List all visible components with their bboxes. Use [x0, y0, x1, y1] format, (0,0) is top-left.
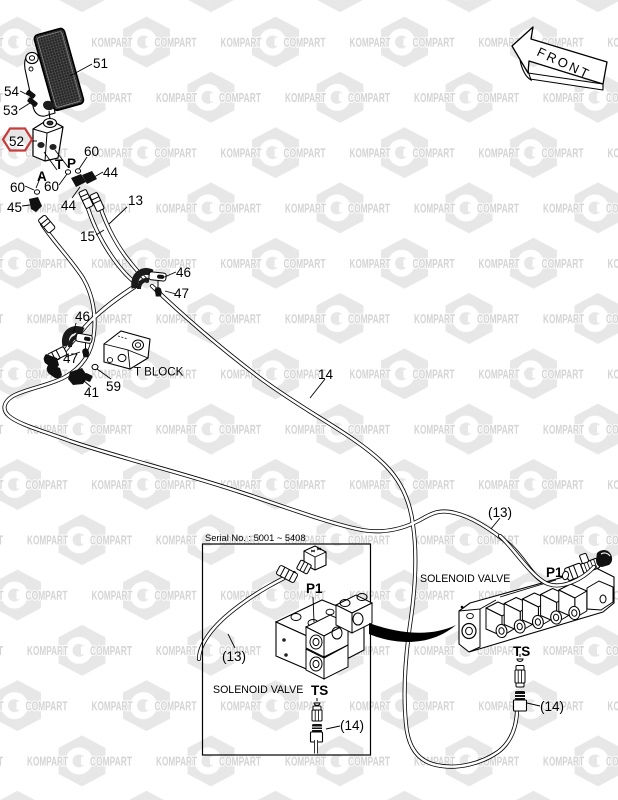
svg-text:44: 44 — [103, 165, 119, 180]
svg-text:P1: P1 — [546, 565, 563, 580]
svg-text:TS: TS — [513, 644, 530, 659]
svg-text:46: 46 — [75, 309, 90, 324]
svg-text:47: 47 — [63, 351, 78, 366]
svg-text:46: 46 — [176, 265, 191, 280]
svg-text:60: 60 — [84, 144, 99, 159]
svg-text:TS: TS — [311, 683, 328, 698]
svg-text:13: 13 — [128, 193, 143, 208]
svg-text:52: 52 — [9, 134, 24, 149]
svg-text:47: 47 — [174, 286, 189, 301]
svg-text:(13): (13) — [488, 505, 512, 520]
svg-text:14: 14 — [318, 367, 334, 382]
svg-text:60: 60 — [10, 180, 25, 195]
svg-text:SOLENOID VALVE: SOLENOID VALVE — [213, 684, 303, 696]
svg-text:15: 15 — [80, 229, 95, 244]
svg-text:59: 59 — [106, 379, 121, 394]
svg-text:T: T — [55, 157, 64, 172]
svg-text:(14): (14) — [540, 699, 564, 714]
svg-text:(14): (14) — [340, 718, 364, 733]
svg-text:53: 53 — [3, 103, 18, 118]
svg-text:51: 51 — [93, 56, 108, 71]
svg-text:54: 54 — [4, 84, 20, 99]
svg-text:(13): (13) — [222, 649, 246, 664]
svg-text:A: A — [37, 169, 47, 184]
svg-text:P: P — [67, 156, 76, 171]
svg-text:41: 41 — [84, 385, 99, 400]
svg-text:45: 45 — [7, 200, 22, 215]
svg-text:SOLENOID VALVE: SOLENOID VALVE — [420, 573, 510, 585]
svg-text:P1: P1 — [306, 581, 323, 596]
svg-text:Serial No. : 5001 ~ 5408: Serial No. : 5001 ~ 5408 — [205, 533, 306, 543]
svg-text:T BLOCK: T BLOCK — [134, 366, 184, 379]
svg-text:44: 44 — [61, 198, 77, 213]
